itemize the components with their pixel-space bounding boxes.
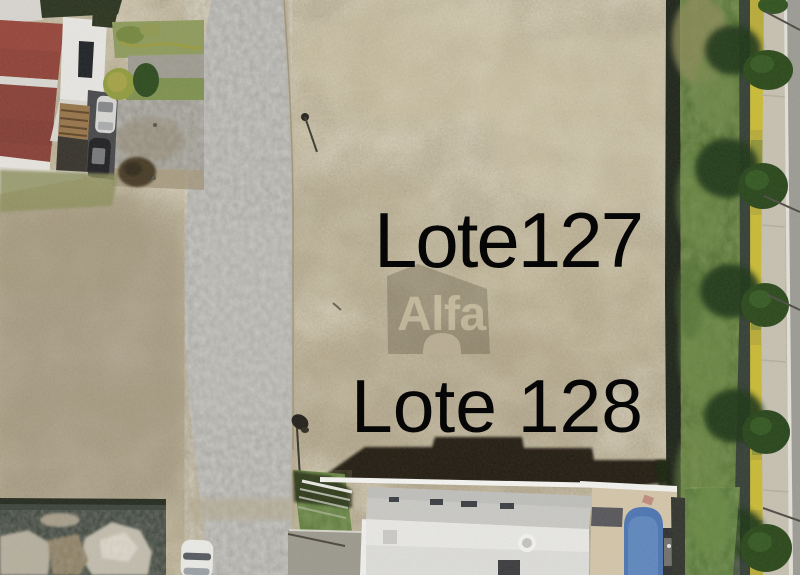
svg-text:Lote 128: Lote 128 xyxy=(351,364,643,448)
svg-text:Lote127: Lote127 xyxy=(374,196,642,284)
svg-text:Alfa: Alfa xyxy=(397,288,486,341)
